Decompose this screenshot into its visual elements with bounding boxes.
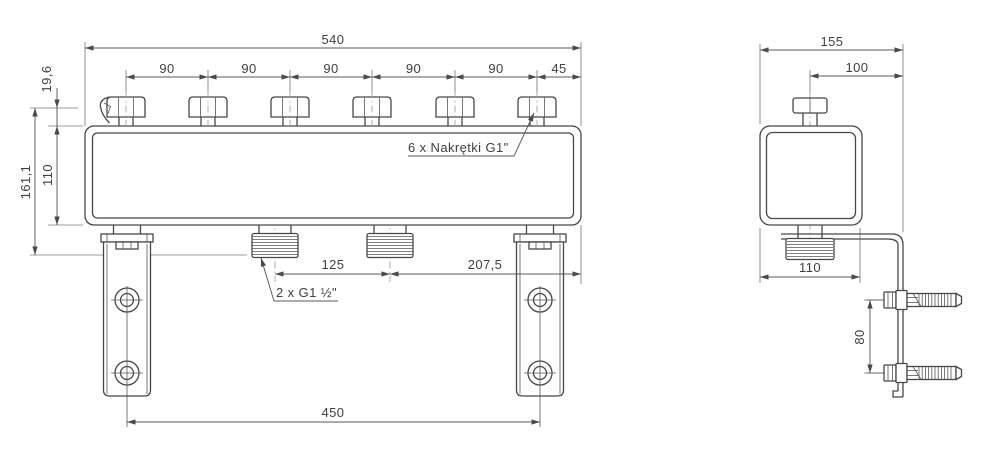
dim-vent-height: 19,6	[39, 66, 54, 93]
bottom-port-side	[786, 225, 834, 260]
dim-body-depth: 110	[799, 260, 821, 275]
dim-pitch-3: 90	[323, 61, 338, 76]
technical-drawing-canvas: 540 90 90 90 90 90 45 19,6 110 161,1 125…	[0, 0, 1000, 468]
dim-depth: 155	[821, 34, 844, 49]
mounting-bracket-right	[514, 225, 566, 427]
dim-port-spacing: 125	[322, 257, 345, 272]
mounting-bracket-left	[101, 225, 153, 427]
manifold-technical-drawing: 540 90 90 90 90 90 45 19,6 110 161,1 125…	[0, 0, 1000, 468]
dim-pitch-2: 90	[241, 61, 256, 76]
dim-bracket-span: 450	[322, 405, 345, 420]
wall-anchor-2	[866, 364, 962, 383]
hex-nut-3	[271, 91, 309, 130]
dim-anchor-spacing: 80	[852, 329, 867, 344]
hex-nut-5	[436, 91, 474, 130]
bottom-port-2	[367, 225, 413, 258]
dim-total-height: 161,1	[18, 165, 33, 200]
dim-body-height: 110	[40, 164, 55, 186]
dim-end-pitch: 45	[551, 61, 566, 76]
wall-anchor-1	[866, 291, 962, 310]
dim-pitch-4: 90	[406, 61, 421, 76]
bottom-port-1	[252, 225, 298, 258]
label-nuts: 6 x Nakrętki G1"	[408, 140, 509, 155]
dim-port-to-edge: 207,5	[468, 257, 503, 272]
dim-pitch-1: 90	[159, 61, 174, 76]
hex-nut-4	[353, 91, 391, 130]
dim-nut-to-bracket: 100	[846, 60, 869, 75]
side-view	[760, 98, 962, 397]
manifold-body-side	[760, 126, 862, 225]
dim-pitch-5: 90	[488, 61, 503, 76]
hex-nut-6	[518, 91, 556, 130]
hex-nut-1	[107, 91, 145, 130]
label-ports: 2 x G1 ½"	[276, 285, 337, 300]
hex-nut-2	[189, 91, 227, 130]
dim-total-width: 540	[322, 32, 345, 47]
